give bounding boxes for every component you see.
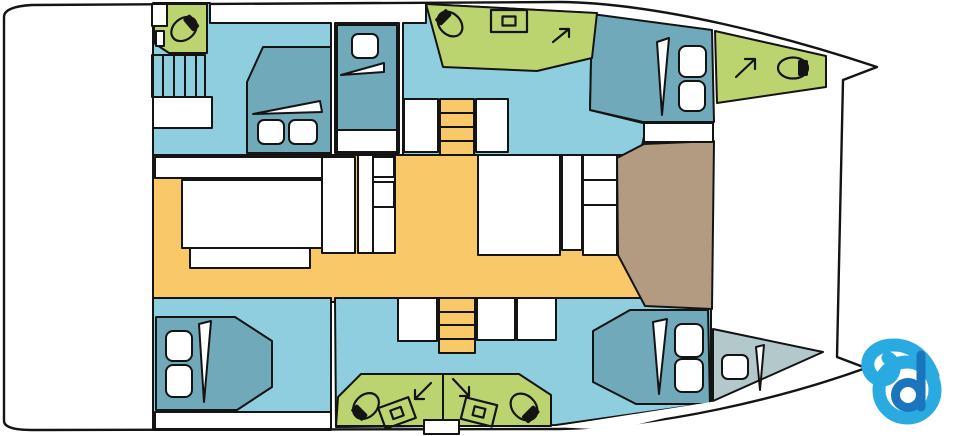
pillow bbox=[679, 81, 705, 111]
heads-entry-step bbox=[424, 420, 459, 434]
walkway-strip bbox=[155, 412, 331, 429]
galley-unit-a bbox=[322, 157, 355, 253]
pillow bbox=[258, 120, 284, 144]
pillow bbox=[675, 359, 703, 392]
port-fwd-double-bed bbox=[590, 14, 714, 122]
cabin-floor-strip bbox=[337, 130, 397, 152]
pillow bbox=[166, 331, 192, 361]
deck-strip bbox=[644, 123, 713, 142]
salon-bench bbox=[190, 248, 310, 268]
pillow bbox=[679, 46, 706, 77]
salon-table bbox=[182, 180, 322, 248]
salon-entry-stairs-top bbox=[404, 99, 508, 155]
galley-sink-box-1 bbox=[373, 157, 394, 177]
nav-strip bbox=[562, 155, 582, 250]
head-door bbox=[156, 31, 164, 46]
nav-seat bbox=[478, 155, 560, 255]
stbd-heads-area bbox=[336, 374, 551, 434]
floorplan-canvas bbox=[0, 0, 960, 436]
port-mid-single-bed bbox=[337, 25, 397, 152]
brand-logo bbox=[868, 345, 935, 418]
catamaran-floorplan bbox=[0, 0, 960, 436]
galley-sink-box-2 bbox=[373, 182, 394, 207]
pillow bbox=[675, 324, 703, 357]
pillow bbox=[722, 355, 748, 379]
pillow bbox=[352, 34, 378, 58]
stbd-fwd-double-bed bbox=[593, 310, 710, 404]
galley-deck-access-area bbox=[426, 4, 597, 71]
port-aft-double-bed bbox=[247, 47, 331, 153]
pillow bbox=[289, 120, 317, 144]
port-aft-head bbox=[152, 4, 207, 53]
pillow bbox=[166, 365, 192, 397]
